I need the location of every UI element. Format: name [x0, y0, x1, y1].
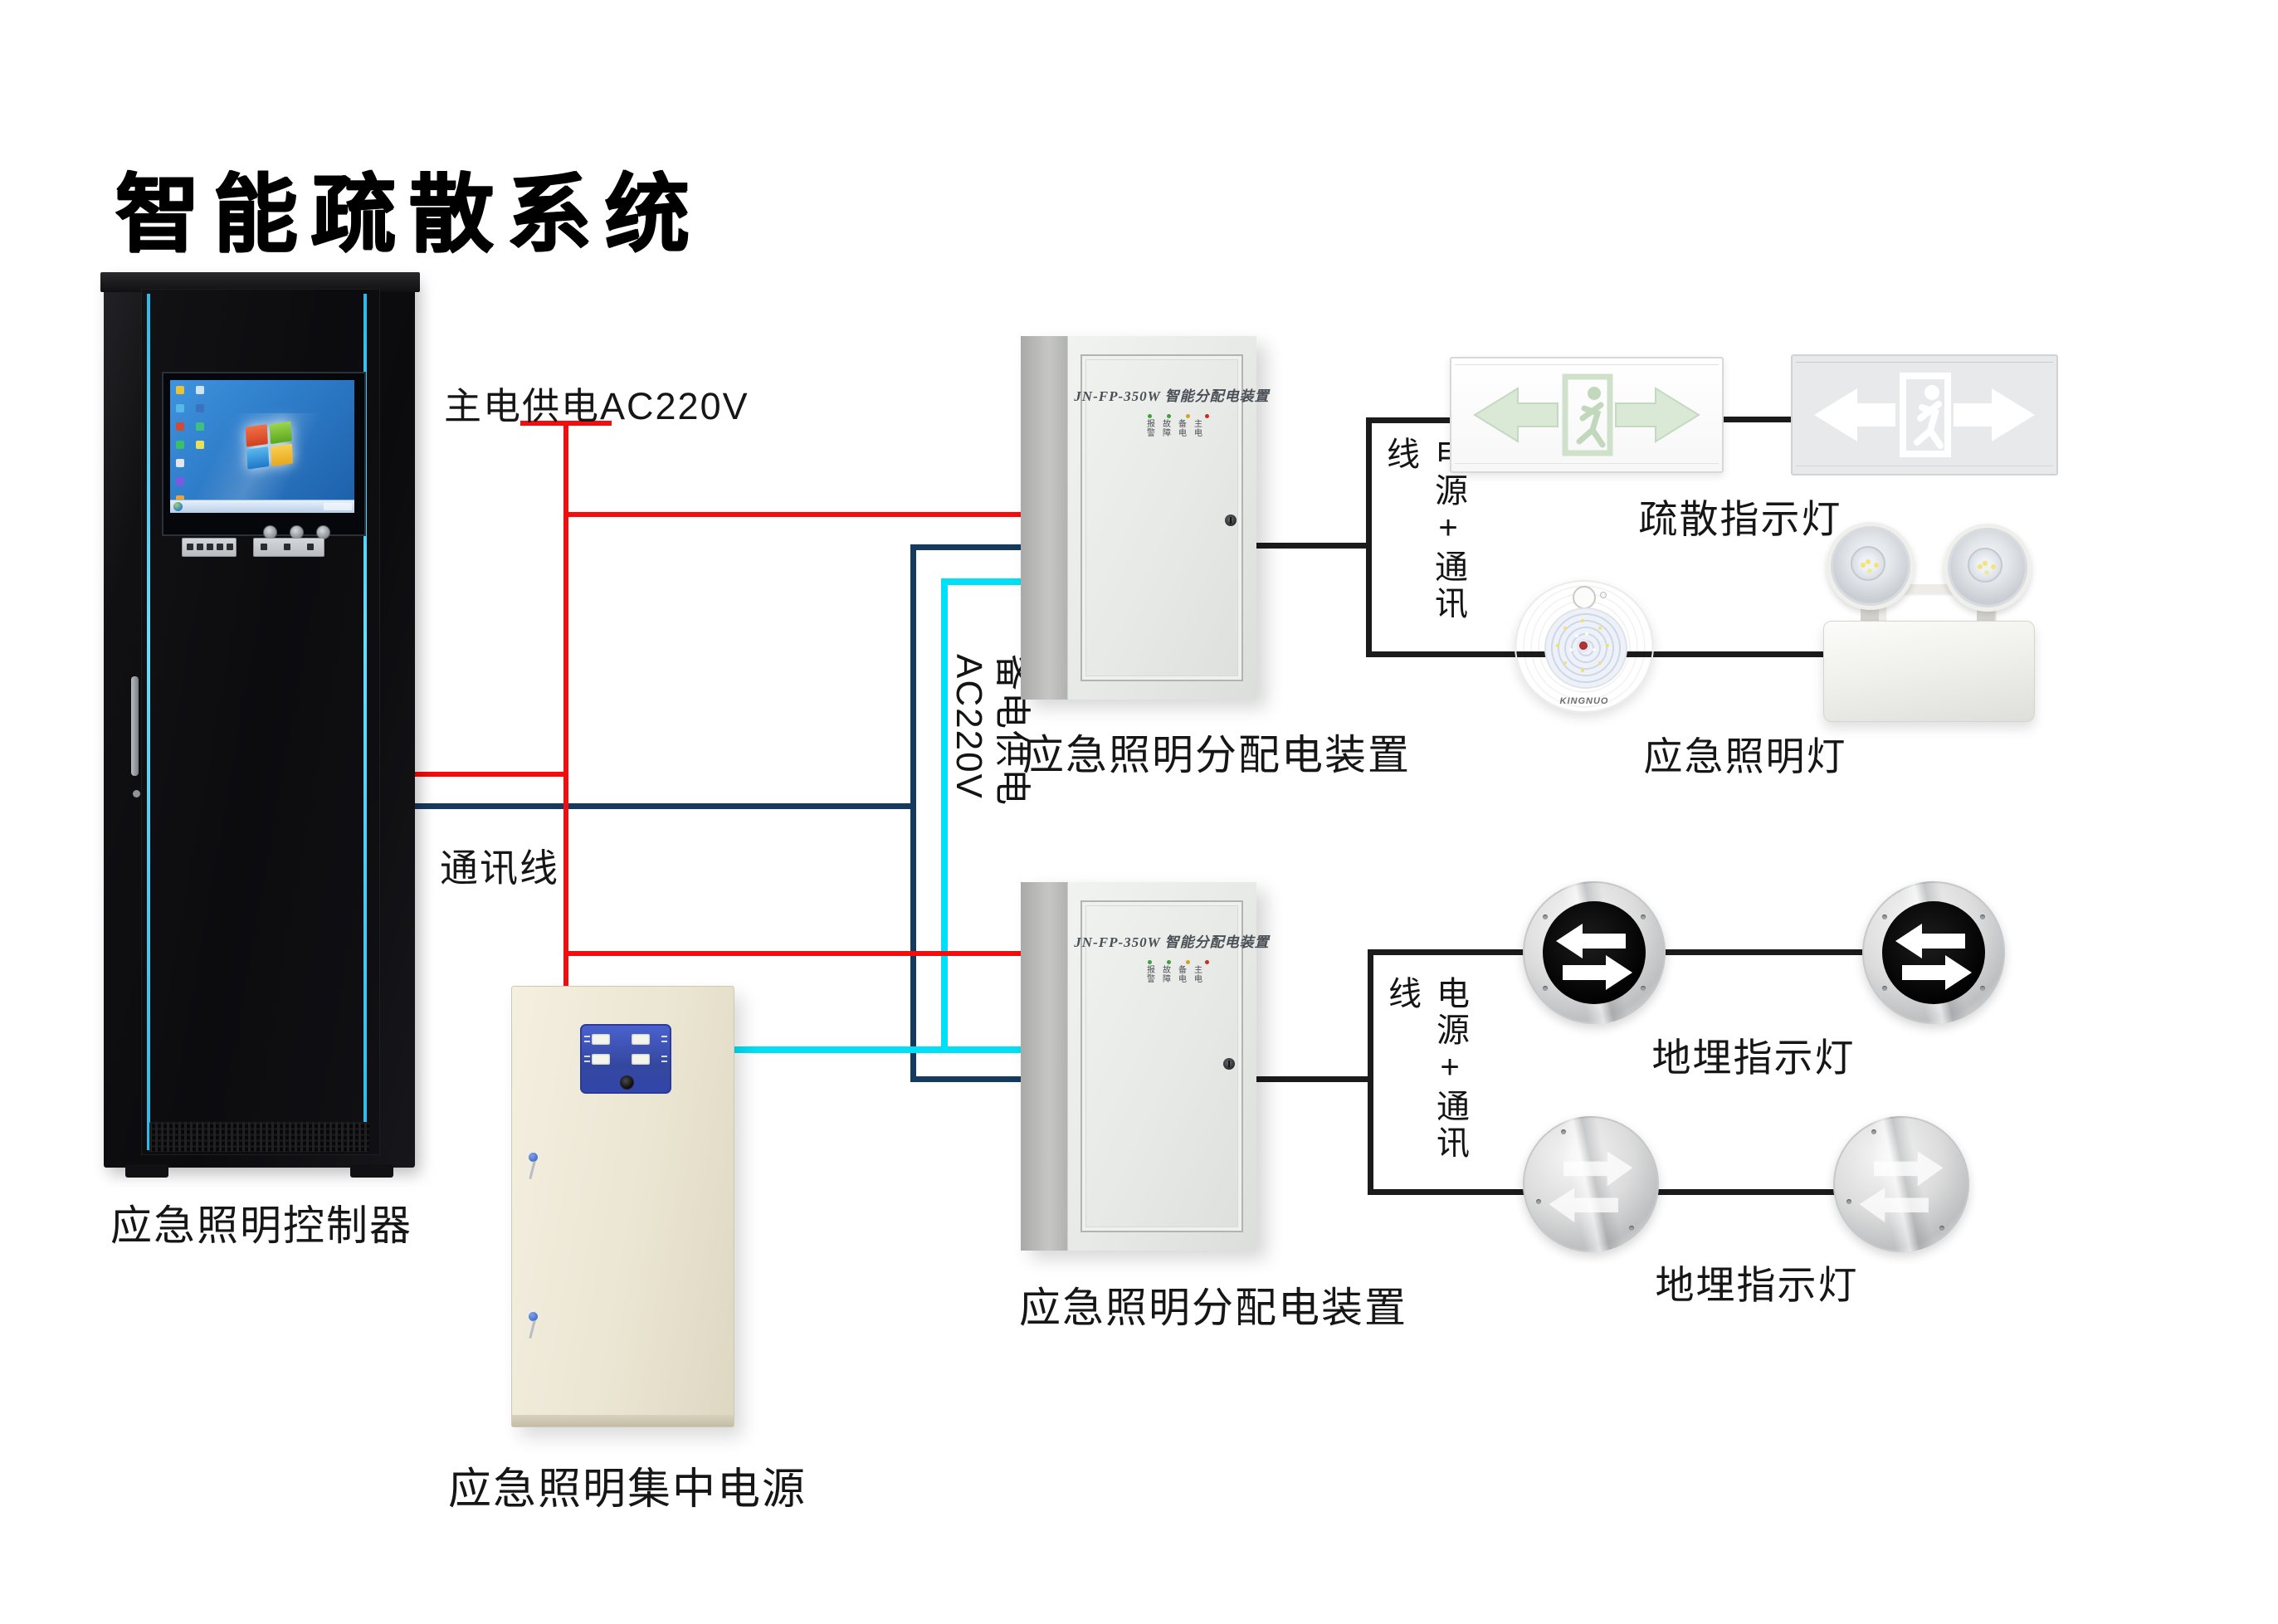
ground-light-face — [1882, 901, 1985, 1004]
central-power-supply-box — [511, 986, 734, 1427]
comm-wire-to-box1 — [910, 544, 1023, 550]
ground-light-steel-2 — [1833, 1116, 1969, 1252]
main-power-to-box2 — [563, 951, 1023, 956]
exit-sign-2 — [1791, 354, 2058, 475]
backup-wire-vertical — [941, 578, 948, 1053]
comm-wire-to-box2 — [910, 1076, 1023, 1082]
cabinet-port-strip-2 — [253, 538, 324, 557]
bracket1-top-arm — [1366, 417, 1454, 423]
box1-model-text: JN-FP-350W 智能分配电装置 — [1054, 384, 1290, 405]
psu-display-3 — [592, 1054, 610, 1065]
ground-light-black-2 — [1862, 881, 2005, 1024]
exit-sign-1-glyphs — [1451, 358, 1722, 471]
cabinet-port-strip-1 — [182, 538, 237, 557]
bracket1-vertical — [1366, 417, 1372, 657]
led-red-icon — [1205, 960, 1209, 964]
round-emergency-lamp: KINGNUO — [1515, 580, 1654, 713]
comm-wire-cabinet-segment — [412, 803, 915, 809]
exit-sign-2-glyphs — [1793, 356, 2056, 474]
led-green-icon — [1167, 414, 1171, 418]
box2-led-label-row1: 报故备主 — [1120, 966, 1237, 975]
box2-bracket-connector — [1253, 1076, 1371, 1082]
box1-bracket-connector — [1256, 543, 1369, 549]
twin-light-body — [1823, 621, 2035, 722]
led-red-icon — [1205, 414, 1209, 418]
led-green-icon — [1167, 960, 1171, 964]
box2-led-indicators: 报故备主 警障电电 — [1120, 960, 1237, 984]
main-power-to-box1 — [563, 512, 1023, 517]
twin-light-head-right — [1944, 524, 2032, 612]
box1-led-label-row2: 警障电电 — [1120, 429, 1237, 438]
screen-taskbar — [170, 500, 354, 513]
bracket2-vertical — [1368, 949, 1373, 1195]
ground-light-face — [1543, 901, 1646, 1004]
cabinet-foot-right — [350, 1164, 393, 1178]
cabinet-vent-grille — [149, 1122, 369, 1152]
lamp-test-button-icon — [1573, 586, 1596, 609]
box1-keyhole-icon — [1225, 515, 1237, 526]
psu-key-lock-1 — [529, 1153, 538, 1162]
backup-wire-to-box1 — [941, 578, 1023, 585]
cabinet-monitor-screen — [170, 380, 354, 513]
cabinet-door-lock — [133, 790, 140, 797]
lamp-brand-text: KINGNUO — [1515, 696, 1654, 706]
cabinet-accent-left — [147, 294, 150, 1150]
main-power-label: 主电供电AC220V — [444, 376, 722, 430]
evac-sign-label: 疏散指示灯 — [1620, 487, 1861, 544]
double-arrow-icon — [1845, 1128, 1958, 1241]
box2-keyhole-icon — [1223, 1058, 1235, 1070]
psu-display-2 — [632, 1034, 650, 1045]
twin-light-head-left — [1827, 522, 1915, 610]
ground-sign-label-2: 地埋指示灯 — [1637, 1253, 1877, 1310]
arrow-left-icon — [1475, 388, 1558, 441]
ground-light-black-1 — [1523, 881, 1666, 1024]
controller-label: 应急照明控制器 — [104, 1192, 419, 1252]
distribution-box-1-label: 应急照明分配电装置 — [1022, 722, 1400, 782]
double-arrow-icon — [1882, 901, 1985, 1004]
desktop-icons-column2 — [196, 386, 204, 449]
main-power-trunk — [563, 421, 568, 988]
comm-label: 通讯线 — [433, 838, 566, 893]
start-orb-icon — [173, 502, 183, 511]
central-power-label: 应急照明集中电源 — [448, 1454, 801, 1516]
cabinet-monitor — [162, 372, 366, 536]
psu-bottom-edge — [512, 1415, 734, 1426]
led-green-icon — [1148, 414, 1152, 418]
box2-model-text: JN-FP-350W 智能分配电装置 — [1054, 930, 1290, 951]
arrow-right-icon — [1954, 388, 2035, 441]
windows-logo-icon — [246, 422, 296, 470]
distribution-box-2: JN-FP-350W 智能分配电装置 报故备主 警障电电 — [1021, 882, 1256, 1251]
arrow-right-icon — [1616, 388, 1699, 441]
exit-sign-1 — [1450, 357, 1724, 473]
emergency-lighting-controller-cabinet — [104, 274, 415, 1168]
psu-display-4 — [632, 1054, 650, 1065]
led-green-icon — [1148, 960, 1152, 964]
running-man-icon — [1917, 385, 1940, 446]
led-amber-icon — [1186, 960, 1190, 964]
emergency-lamp-label: 应急照明灯 — [1625, 724, 1866, 782]
cabinet-door-handle — [131, 676, 139, 776]
cabinet-foot-left — [125, 1164, 168, 1178]
ground-light-steel-1 — [1523, 1116, 1659, 1252]
arrow-left-icon — [1814, 388, 1895, 441]
psu-key-lock-2 — [529, 1312, 538, 1321]
lamp-center-sensor-icon — [1579, 641, 1588, 650]
comm-wire-vertical — [910, 544, 916, 1082]
sign1-sign2-link — [1718, 417, 1794, 422]
psu-display-1 — [592, 1034, 610, 1045]
taskbar-tray — [324, 503, 352, 510]
double-arrow-icon — [1534, 1128, 1647, 1241]
bracket2-label: 电源+通讯线 — [1378, 976, 1474, 1192]
desktop-icons-column1 — [176, 386, 184, 504]
ground-sign-label-1: 地埋指示灯 — [1633, 1026, 1874, 1083]
diagram-canvas: 智能疏散系统图 主电供电AC220V 通讯线 备电供电AC220V 电源+通讯线… — [0, 0, 2278, 1624]
lamp-indicator-dot-icon — [1600, 592, 1607, 598]
main-power-to-cabinet — [412, 772, 568, 777]
led-amber-icon — [1186, 414, 1190, 418]
box2-led-label-row2: 警障电电 — [1120, 975, 1237, 984]
running-man-icon — [1579, 387, 1602, 445]
distribution-box-1: JN-FP-350W 智能分配电装置 报故备主 警障电电 — [1021, 336, 1256, 700]
psu-knob — [620, 1075, 634, 1090]
double-arrow-icon — [1543, 901, 1646, 1004]
box1-led-label-row1: 报故备主 — [1120, 420, 1237, 429]
distribution-box-2-label: 应急照明分配电装置 — [1019, 1275, 1397, 1334]
psu-control-panel — [580, 1024, 671, 1094]
backup-wire-main-segment — [729, 1046, 1023, 1053]
box1-led-indicators: 报故备主 警障电电 — [1120, 414, 1237, 438]
